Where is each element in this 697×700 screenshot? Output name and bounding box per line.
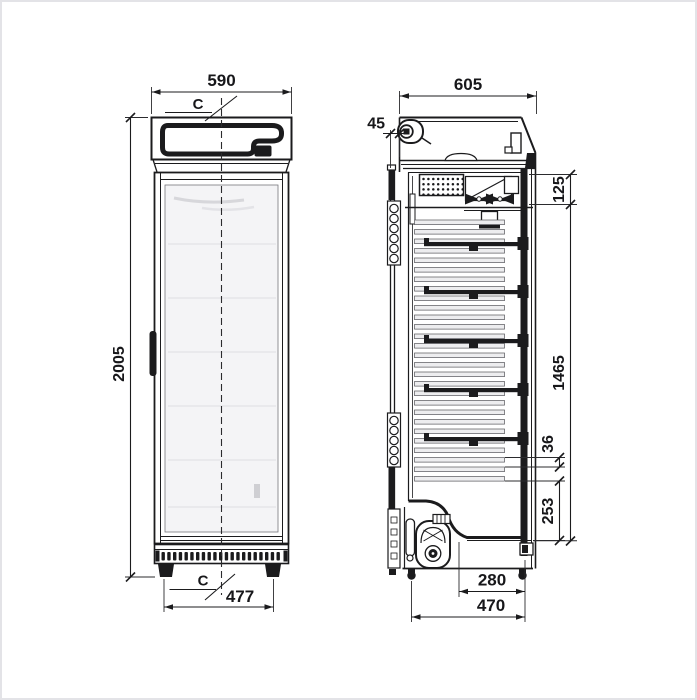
canopy-clip	[445, 154, 477, 161]
dim-base-inner-depth-label: 280	[478, 571, 506, 590]
evaporator-panel	[420, 175, 464, 196]
rear-bracket	[505, 133, 521, 153]
fan-motor	[505, 177, 519, 194]
refrigerator-technical-drawing: 590 C 2005 477 C	[2, 2, 697, 700]
dim-slot-pitch-label: 36	[540, 435, 557, 453]
lamp-fixture	[398, 120, 431, 144]
centerline-top-label: C	[193, 96, 204, 113]
rear-corner-block	[525, 153, 535, 168]
dim-top-section-label: 125	[551, 176, 568, 203]
dim-front-width-label: 590	[207, 71, 235, 90]
dim-feet-span-label: 477	[226, 587, 254, 606]
dim-door-offset-label: 45	[367, 116, 385, 133]
dim-shelf-section: 1465	[533, 205, 577, 546]
door-handle	[150, 331, 157, 376]
door-section	[388, 165, 401, 575]
front-foot-right	[265, 564, 281, 577]
relay-box	[433, 515, 450, 524]
interior-back-wall	[521, 168, 528, 556]
door-glass-pane	[165, 185, 278, 532]
dim-shelf-section-label: 1465	[551, 355, 568, 391]
dim-depth-label: 605	[454, 75, 482, 94]
front-view: 590 C 2005 477 C	[111, 71, 292, 612]
centerline-bottom-label: C	[198, 573, 209, 590]
drawing-page: 590 C 2005 477 C	[0, 0, 697, 700]
dim-front-height: 2005	[111, 113, 155, 582]
side-foot-front	[407, 569, 415, 580]
interior-walls	[405, 168, 528, 568]
sticker	[254, 484, 260, 498]
compressor	[416, 515, 450, 569]
dim-depth: 605	[400, 75, 537, 114]
glass-door	[150, 173, 289, 544]
side-view: 605 45 125 1465	[367, 75, 577, 622]
dim-front-height-label: 2005	[111, 346, 128, 382]
dim-bottom-section-label: 253	[540, 498, 557, 525]
dim-feet-span: 477	[164, 579, 274, 612]
front-foot-left	[158, 564, 174, 577]
compressor-compartment	[403, 501, 534, 580]
shelf-support-slats	[415, 220, 505, 481]
display-window	[255, 146, 272, 157]
drier-filter	[406, 519, 415, 556]
dim-base-depth-label: 470	[477, 596, 505, 615]
dim-base-depth: 470	[412, 581, 526, 622]
